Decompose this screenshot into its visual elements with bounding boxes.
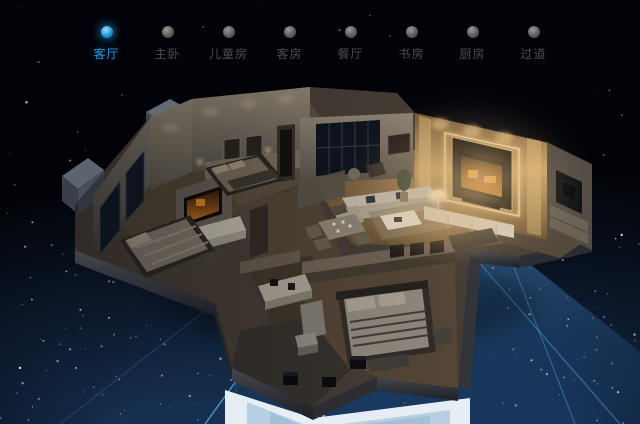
apartment-3d-model[interactable]: [0, 0, 640, 424]
nav-item-hallway[interactable]: 过道: [512, 26, 556, 61]
room-dot-icon: [284, 26, 296, 38]
room-label: 客房: [276, 47, 302, 61]
nav-item-children-room[interactable]: 儿童房: [207, 26, 251, 61]
nav-item-master-bedroom[interactable]: 主卧: [146, 26, 190, 61]
nav-item-dining-room[interactable]: 餐厅: [329, 26, 373, 61]
room-label: 书房: [398, 47, 424, 61]
room-dot-icon: [101, 26, 113, 38]
room-label: 餐厅: [337, 47, 363, 61]
room-label: 主卧: [154, 47, 180, 61]
room-label: 儿童房: [209, 47, 248, 61]
room-label: 客厅: [93, 47, 119, 61]
room-label: 厨房: [459, 47, 485, 61]
room-dot-icon: [406, 26, 418, 38]
room-nav: 客厅 主卧 儿童房 客房 餐厅 书房 厨房 过道: [0, 0, 640, 61]
nav-item-study[interactable]: 书房: [390, 26, 434, 61]
room-label: 过道: [520, 47, 546, 61]
nav-item-guest-room[interactable]: 客房: [268, 26, 312, 61]
apartment-viewer: 客厅 主卧 儿童房 客房 餐厅 书房 厨房 过道: [0, 0, 640, 424]
room-dot-icon: [223, 26, 235, 38]
room-dot-icon: [528, 26, 540, 38]
nav-item-living-room[interactable]: 客厅: [85, 26, 129, 61]
room-dot-icon: [345, 26, 357, 38]
nav-item-kitchen[interactable]: 厨房: [451, 26, 495, 61]
room-dot-icon: [162, 26, 174, 38]
room-dot-icon: [467, 26, 479, 38]
